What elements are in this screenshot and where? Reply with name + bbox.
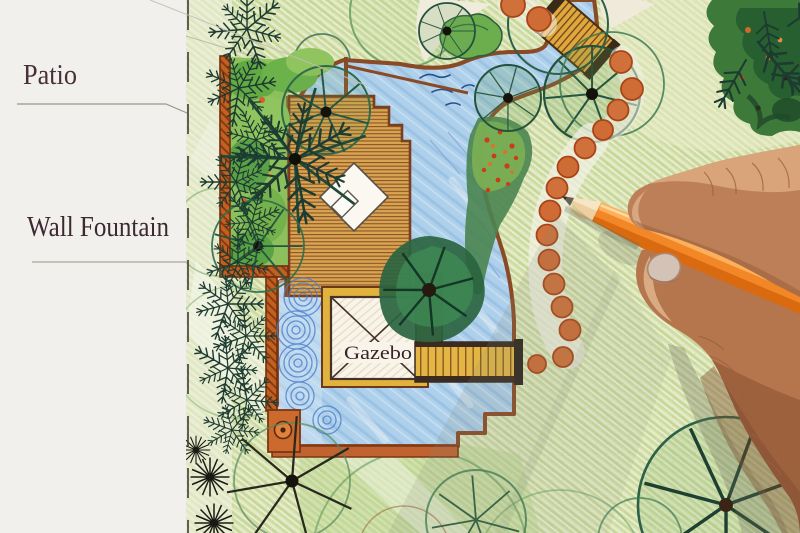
svg-text:Patio: Patio: [23, 59, 77, 91]
svg-text:Gazebo: Gazebo: [344, 343, 412, 364]
svg-text:Wall Fountain: Wall Fountain: [27, 211, 169, 243]
